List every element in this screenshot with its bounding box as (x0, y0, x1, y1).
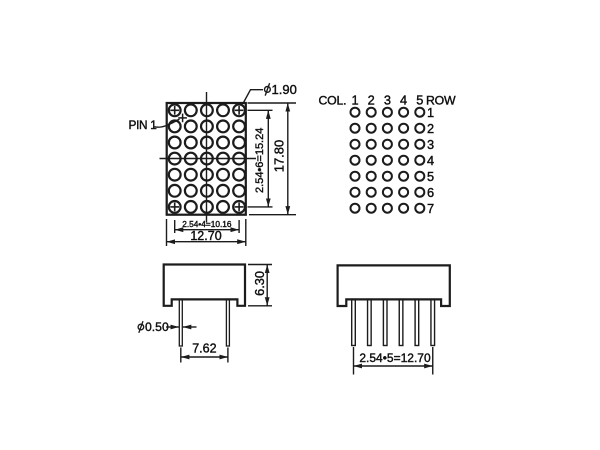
svg-text:5: 5 (427, 169, 434, 184)
svg-text:COL.: COL. (319, 94, 347, 108)
svg-text:4: 4 (427, 153, 434, 168)
svg-text:1: 1 (427, 105, 434, 120)
svg-text:2: 2 (427, 121, 434, 136)
svg-text:PIN 1: PIN 1 (129, 118, 157, 132)
svg-text:17.80: 17.80 (271, 140, 286, 173)
svg-text:7.62: 7.62 (192, 342, 216, 356)
svg-text:2.54•5=12.70: 2.54•5=12.70 (359, 351, 431, 365)
svg-text:5: 5 (416, 93, 423, 108)
svg-text:2.54•6=15.24: 2.54•6=15.24 (254, 128, 266, 193)
svg-text:2.54•4=10.16: 2.54•4=10.16 (182, 219, 232, 229)
svg-text:12.70: 12.70 (190, 229, 221, 243)
svg-text:6: 6 (427, 185, 434, 200)
svg-text:1.90: 1.90 (272, 82, 297, 97)
svg-text:6.30: 6.30 (252, 271, 267, 296)
svg-text:7: 7 (427, 201, 434, 216)
svg-text:4: 4 (400, 93, 407, 108)
svg-text:2: 2 (368, 93, 375, 108)
svg-text:3: 3 (427, 137, 434, 152)
svg-text:3: 3 (384, 93, 391, 108)
svg-text:0.50: 0.50 (145, 320, 169, 334)
svg-text:1: 1 (351, 93, 358, 108)
